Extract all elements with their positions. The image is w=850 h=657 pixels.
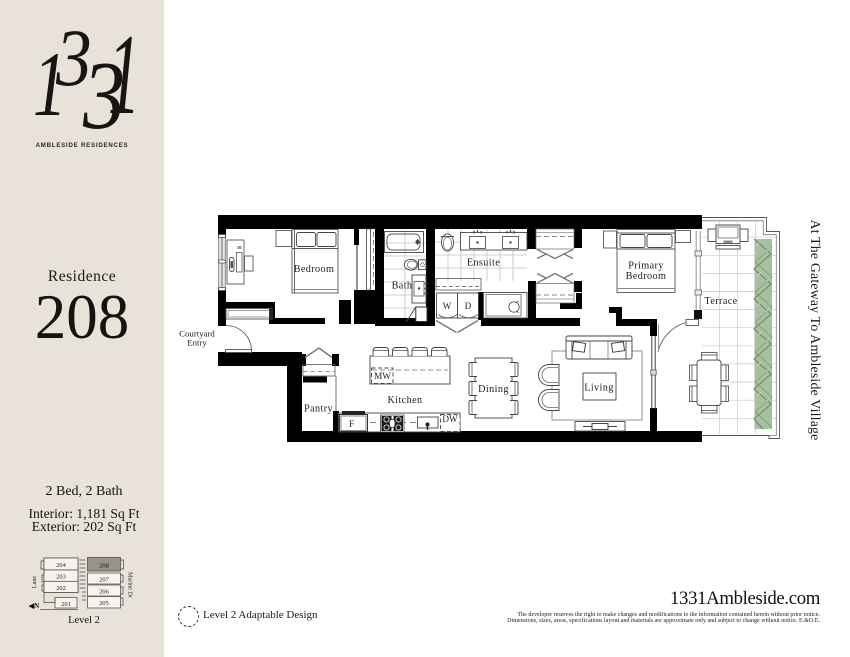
svg-text:Primary: Primary [628, 261, 664, 272]
svg-text:Bedroom: Bedroom [626, 271, 667, 282]
svg-text:F: F [349, 419, 354, 430]
svg-text:D: D [465, 301, 472, 311]
svg-text:Terrace: Terrace [704, 296, 737, 307]
svg-text:MW: MW [374, 371, 391, 381]
svg-text:Bath: Bath [392, 281, 413, 292]
svg-text:Bedroom: Bedroom [294, 264, 335, 275]
svg-text:Living: Living [584, 383, 614, 394]
svg-text:W: W [443, 301, 452, 311]
svg-text:Pantry: Pantry [304, 404, 334, 415]
svg-text:Ensuite: Ensuite [467, 258, 500, 269]
svg-text:Kitchen: Kitchen [387, 395, 422, 406]
svg-text:Entry: Entry [187, 338, 207, 348]
svg-text:Dining: Dining [478, 384, 509, 395]
svg-text:DW: DW [442, 414, 458, 424]
